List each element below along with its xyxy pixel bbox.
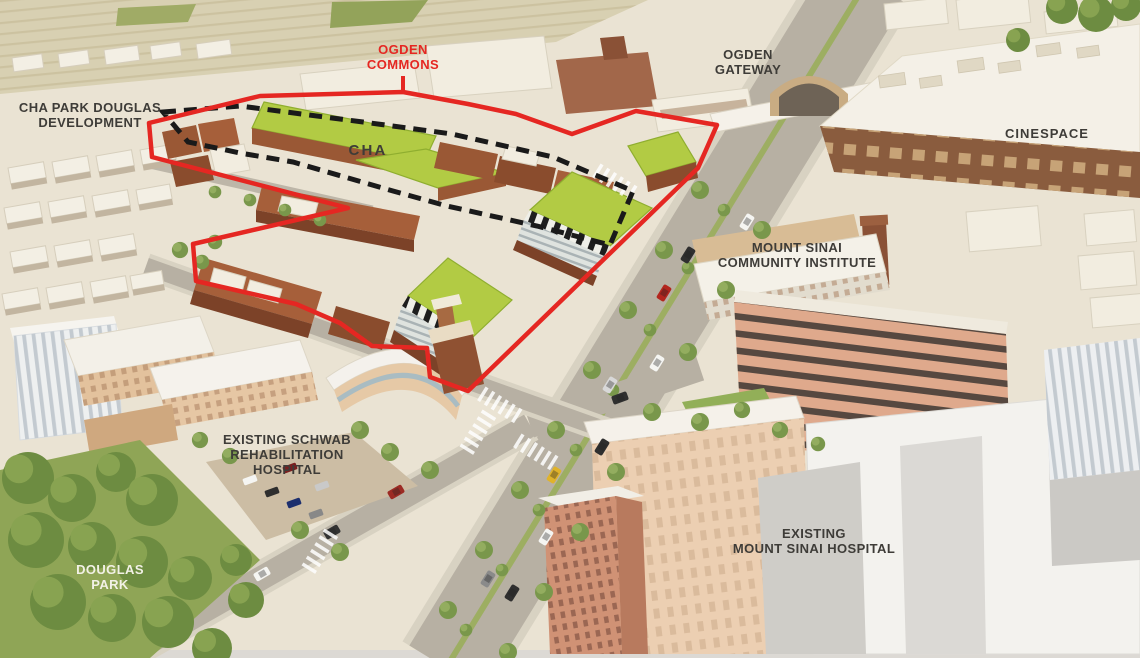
- label-cha: CHA: [333, 143, 403, 158]
- rendering-canvas: [0, 0, 1140, 658]
- label-douglas-park: DOUGLAS PARK: [60, 562, 160, 592]
- label-existing-mount-sinai-hospital: EXISTING MOUNT SINAI HOSPITAL: [714, 526, 914, 556]
- aerial-site-plan: CHA PARK DOUGLAS DEVELOPMENT OGDEN COMMO…: [0, 0, 1140, 658]
- label-ogden-gateway: OGDEN GATEWAY: [688, 47, 808, 77]
- label-mount-sinai-community-institute: MOUNT SINAI COMMUNITY INSTITUTE: [702, 240, 892, 270]
- label-cha-park-douglas-development: CHA PARK DOUGLAS DEVELOPMENT: [10, 100, 170, 130]
- label-cinespace: CINESPACE: [972, 126, 1122, 141]
- label-ogden-commons: OGDEN COMMONS: [343, 42, 463, 72]
- label-existing-schwab-rehabilitation-hospital: EXISTING SCHWAB REHABILITATION HOSPITAL: [207, 432, 367, 477]
